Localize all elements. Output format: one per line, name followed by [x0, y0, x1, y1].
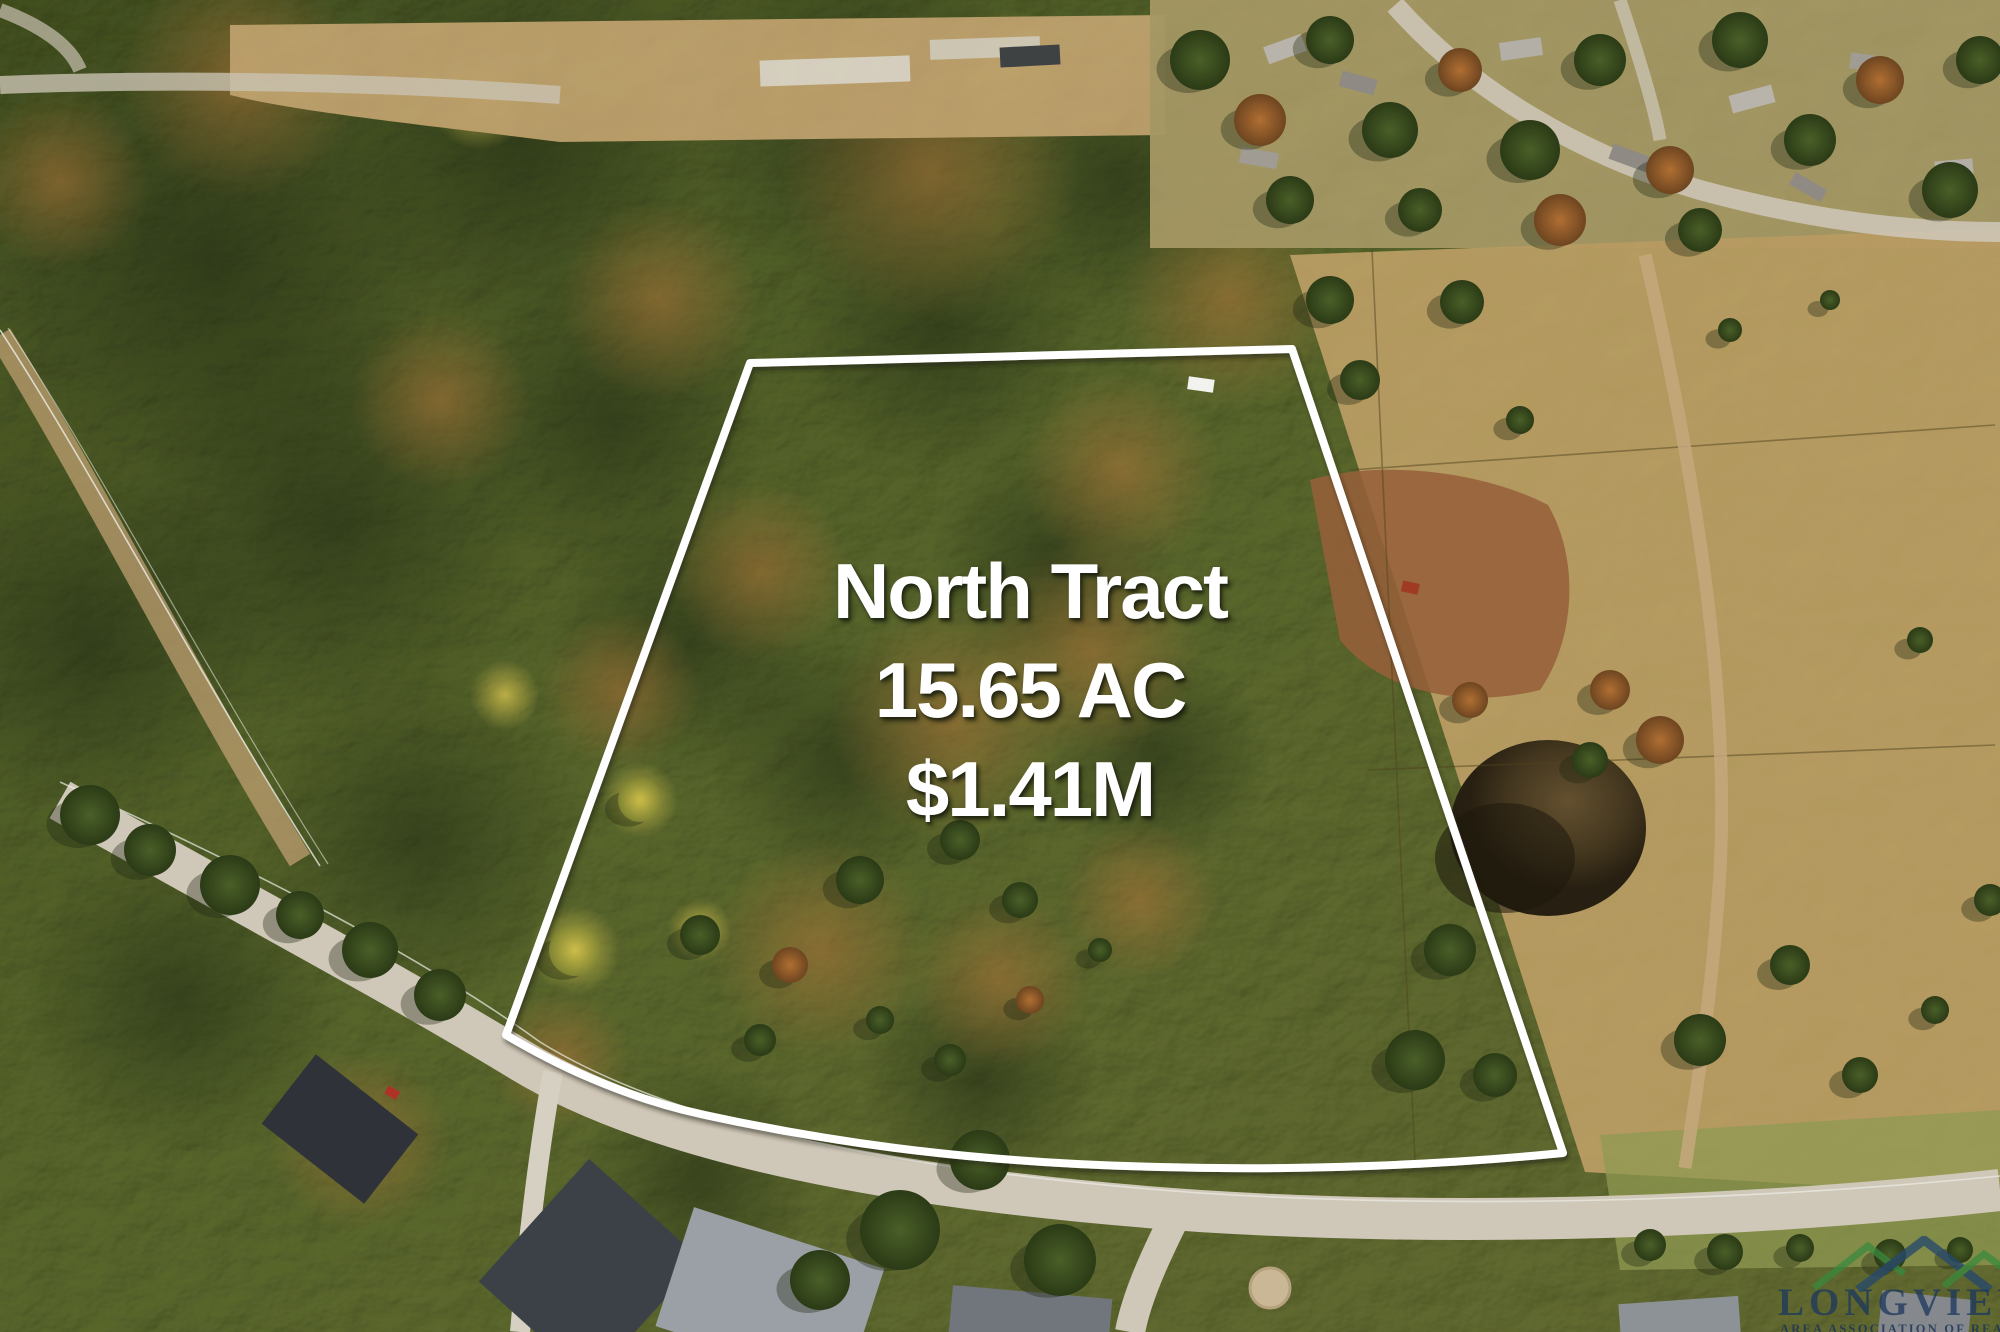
tree — [1473, 1053, 1517, 1097]
canopy-patch — [470, 660, 540, 730]
pond-shadow — [1435, 803, 1575, 913]
tree — [940, 820, 980, 860]
tree — [1306, 16, 1354, 64]
tree — [934, 1044, 966, 1076]
tree — [1784, 114, 1836, 166]
tree — [1921, 996, 1949, 1024]
cul-de-sac — [1250, 1268, 1290, 1308]
tree — [1500, 120, 1560, 180]
tree — [1907, 627, 1933, 653]
tree — [1362, 102, 1418, 158]
tree — [1678, 208, 1722, 252]
tree — [1340, 360, 1380, 400]
tree — [1234, 94, 1286, 146]
tree — [124, 824, 176, 876]
tree — [1856, 56, 1904, 104]
tree — [1306, 276, 1354, 324]
canopy-patch — [1020, 370, 1220, 570]
tree — [1438, 48, 1482, 92]
tree — [1266, 176, 1314, 224]
tree — [1534, 194, 1586, 246]
tree — [1016, 986, 1044, 1014]
tree — [618, 778, 662, 822]
tree — [1452, 682, 1488, 718]
watermark-org-name: LONGVIEW — [1778, 1280, 2000, 1325]
tree — [860, 1190, 940, 1270]
tree — [1718, 318, 1742, 342]
tree — [1024, 1224, 1096, 1296]
aerial-listing-photo: North Tract 15.65 AC $1.41M LONGVIEW ARE… — [0, 0, 2000, 1332]
concrete-pad — [760, 55, 911, 86]
tree — [1440, 280, 1484, 324]
aerial-scene — [0, 0, 2000, 1332]
tree — [772, 947, 808, 983]
tree — [1636, 716, 1684, 764]
tree — [866, 1006, 894, 1034]
tree — [1572, 742, 1608, 778]
tree — [790, 1250, 850, 1310]
tree — [60, 785, 120, 845]
tree — [342, 922, 398, 978]
canopy-patch — [710, 840, 930, 1060]
canopy-patch — [350, 310, 530, 490]
tree — [1088, 938, 1112, 962]
tree — [1707, 1234, 1743, 1270]
tree — [1922, 162, 1978, 218]
tree — [836, 856, 884, 904]
tree — [680, 915, 720, 955]
tree — [1002, 882, 1038, 918]
tree — [1398, 188, 1442, 232]
tree — [1842, 1057, 1878, 1093]
canopy-patch — [560, 200, 760, 400]
canopy-patch — [830, 600, 1070, 840]
tree — [1634, 1229, 1666, 1261]
tree — [1674, 1014, 1726, 1066]
tree — [1646, 146, 1694, 194]
tree — [1712, 12, 1768, 68]
canopy-patch — [540, 610, 700, 770]
tree — [1170, 30, 1230, 90]
tree — [200, 855, 260, 915]
watermark-org-subtitle: AREA ASSOCIATION OF REALTORS — [1780, 1322, 2000, 1332]
tree — [1820, 290, 1840, 310]
tree — [1385, 1030, 1445, 1090]
tree — [1424, 924, 1476, 976]
warehouse-roof — [1000, 44, 1061, 67]
tree — [549, 924, 601, 976]
tree — [276, 891, 324, 939]
tree — [414, 969, 466, 1021]
tree — [1770, 945, 1810, 985]
tree — [1506, 406, 1534, 434]
tree — [1574, 34, 1626, 86]
tree — [744, 1024, 776, 1056]
tree — [1590, 670, 1630, 710]
